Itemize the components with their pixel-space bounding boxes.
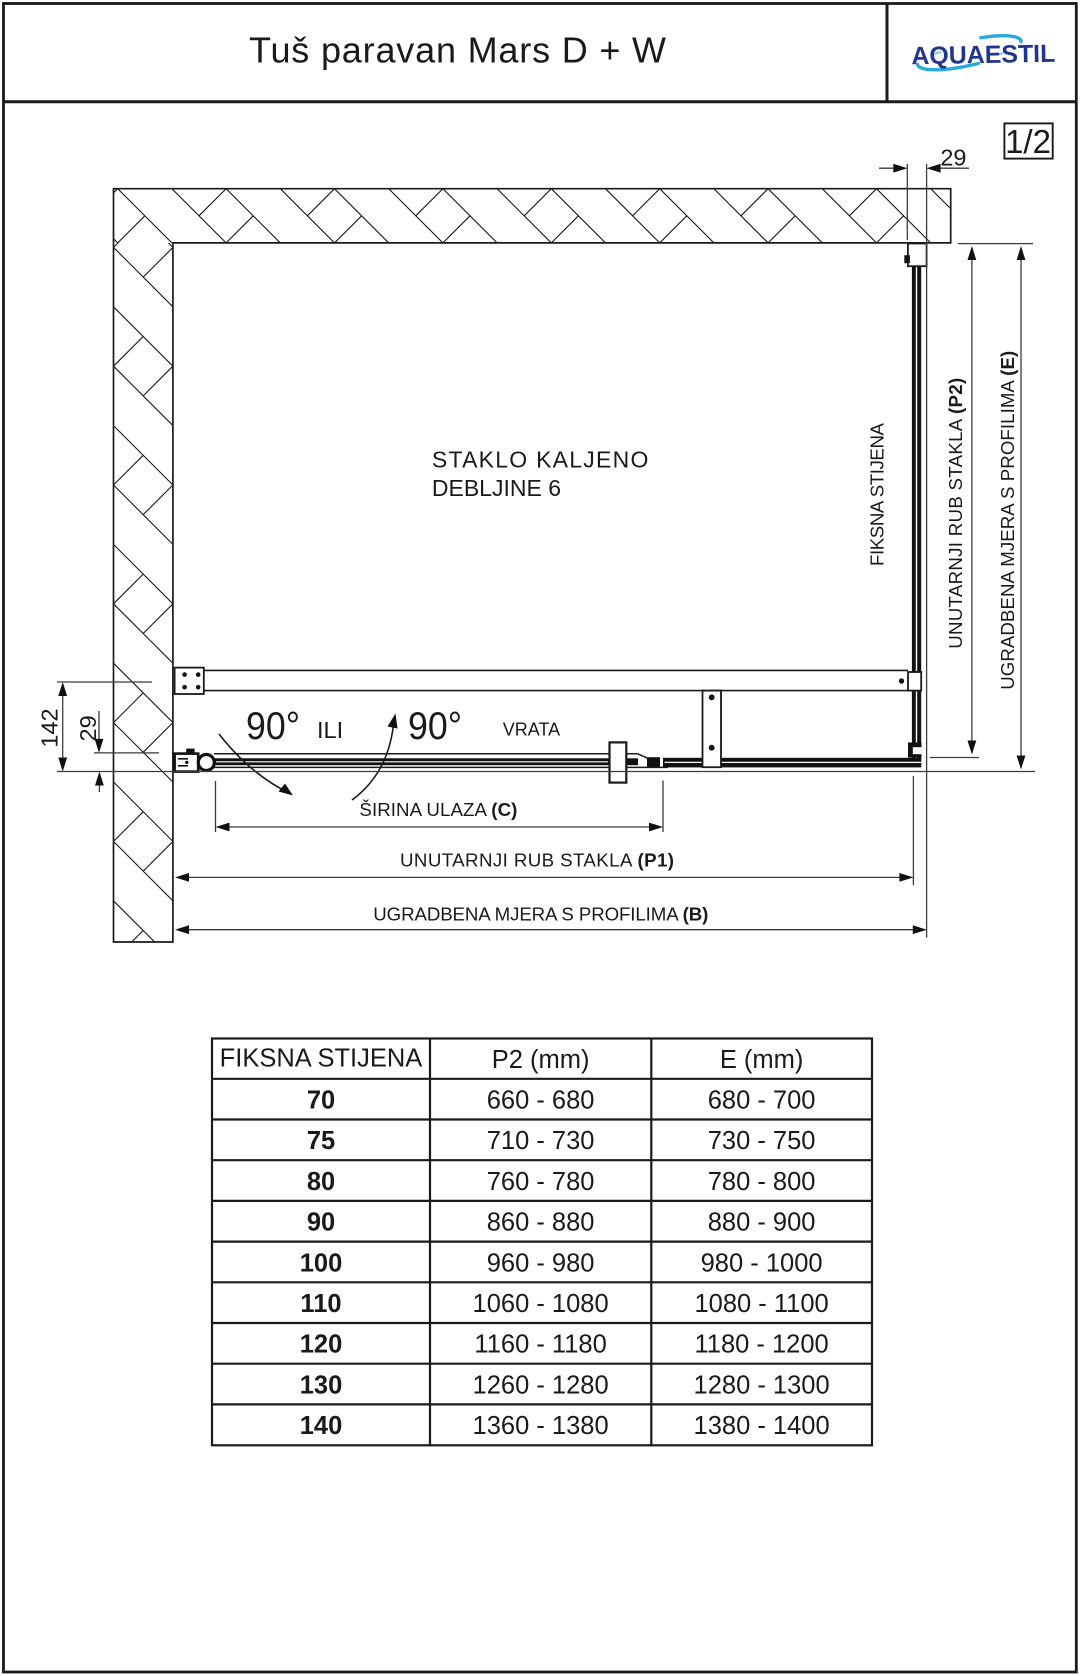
svg-text:UGRADBENA MJERA S PROFILIMA (: UGRADBENA MJERA S PROFILIMA (B)	[373, 904, 708, 925]
svg-text:FIKSNA STIJENA: FIKSNA STIJENA	[867, 422, 888, 566]
svg-text:140: 140	[300, 1412, 343, 1440]
svg-text:660 - 680: 660 - 680	[487, 1087, 595, 1115]
svg-text:1360 - 1380: 1360 - 1380	[473, 1412, 609, 1440]
svg-text:E (mm): E (mm)	[720, 1046, 804, 1074]
svg-text:880 - 900: 880 - 900	[708, 1209, 816, 1237]
svg-text:110: 110	[300, 1290, 341, 1318]
svg-text:DEBLJINE 6: DEBLJINE 6	[432, 475, 561, 501]
svg-text:29: 29	[940, 144, 966, 170]
svg-text:142: 142	[37, 708, 63, 747]
svg-text:VRATA: VRATA	[503, 720, 560, 740]
svg-text:680 - 700: 680 - 700	[708, 1087, 816, 1115]
svg-text:130: 130	[300, 1371, 343, 1399]
svg-text:P2 (mm): P2 (mm)	[492, 1046, 590, 1074]
svg-text:1080 - 1100: 1080 - 1100	[694, 1290, 828, 1318]
svg-text:730 - 750: 730 - 750	[708, 1127, 816, 1155]
svg-text:1280 - 1300: 1280 - 1300	[694, 1371, 830, 1399]
svg-text:120: 120	[300, 1331, 343, 1359]
svg-text:1060 - 1080: 1060 - 1080	[473, 1290, 609, 1318]
svg-text:ILI: ILI	[317, 717, 343, 743]
svg-text:STAKLO KALJENO: STAKLO KALJENO	[432, 447, 649, 473]
svg-text:960 - 980: 960 - 980	[487, 1249, 595, 1277]
svg-text:1/2: 1/2	[1005, 123, 1051, 160]
svg-text:1180 - 1200: 1180 - 1200	[694, 1331, 828, 1359]
svg-text:1260 - 1280: 1260 - 1280	[473, 1371, 609, 1399]
svg-text:90: 90	[307, 1209, 335, 1237]
svg-text:90°: 90°	[408, 705, 462, 748]
svg-text:780 - 800: 780 - 800	[708, 1168, 816, 1196]
svg-text:70: 70	[307, 1087, 335, 1115]
svg-text:Tuš paravan Mars D + W: Tuš paravan Mars D + W	[249, 30, 666, 71]
svg-text:ŠIRINA ULAZA (C): ŠIRINA ULAZA (C)	[359, 799, 517, 820]
svg-text:UGRADBENA MJERA S PROFILIMA (: UGRADBENA MJERA S PROFILIMA (E)	[997, 351, 1018, 690]
svg-text:FIKSNA STIJENA: FIKSNA STIJENA	[220, 1045, 423, 1073]
svg-text:UNUTARNJI RUB STAKLA (P2): UNUTARNJI RUB STAKLA (P2)	[945, 378, 966, 649]
svg-text:100: 100	[300, 1249, 343, 1277]
svg-text:860 - 880: 860 - 880	[487, 1209, 595, 1237]
svg-text:UNUTARNJI RUB STAKLA (P1): UNUTARNJI RUB STAKLA (P1)	[400, 850, 674, 871]
svg-text:1380 - 1400: 1380 - 1400	[694, 1412, 830, 1440]
svg-text:760 - 780: 760 - 780	[487, 1168, 595, 1196]
svg-text:80: 80	[307, 1168, 335, 1196]
svg-text:75: 75	[307, 1127, 335, 1155]
svg-text:90°: 90°	[246, 705, 300, 748]
svg-text:980 - 1000: 980 - 1000	[701, 1249, 823, 1277]
svg-text:1160 - 1180: 1160 - 1180	[474, 1331, 606, 1359]
svg-text:29: 29	[75, 715, 101, 741]
svg-text:AQUAESTIL: AQUAESTIL	[911, 40, 1055, 71]
svg-text:710 - 730: 710 - 730	[487, 1127, 595, 1155]
